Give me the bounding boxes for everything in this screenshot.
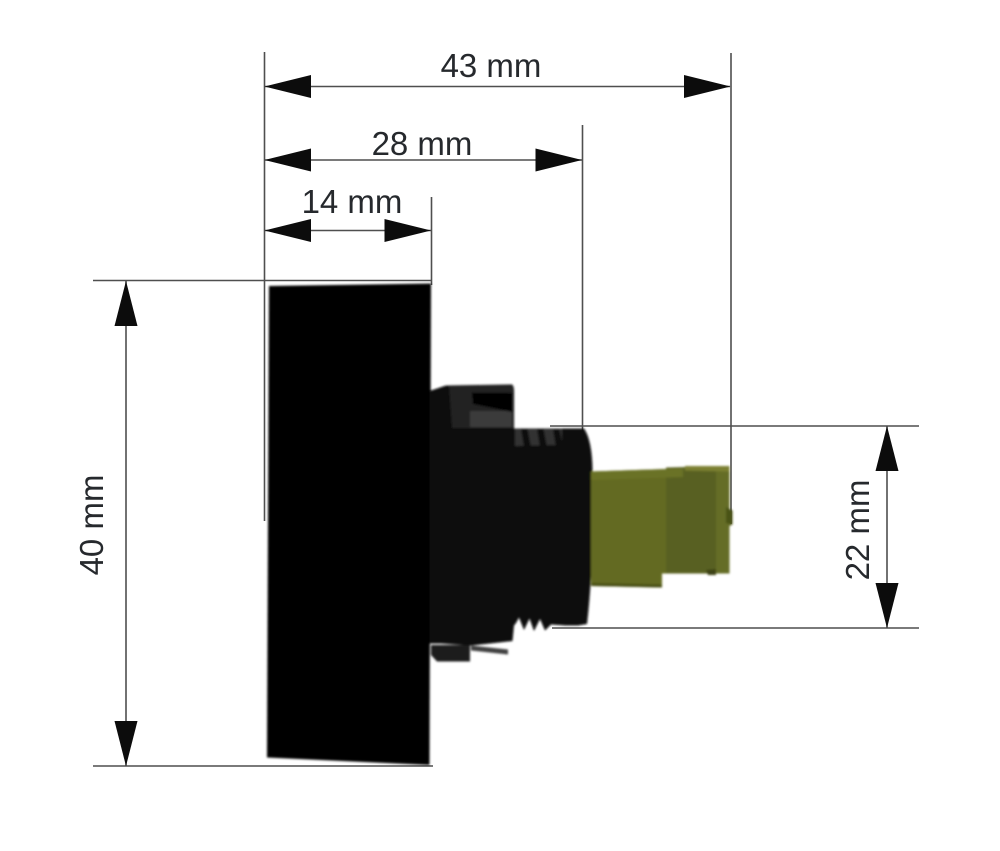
svg-text:40 mm: 40 mm: [73, 475, 110, 576]
svg-text:43 mm: 43 mm: [441, 47, 542, 84]
svg-text:14 mm: 14 mm: [302, 183, 403, 220]
svg-text:28 mm: 28 mm: [372, 125, 473, 162]
svg-text:22 mm: 22 mm: [839, 480, 876, 581]
